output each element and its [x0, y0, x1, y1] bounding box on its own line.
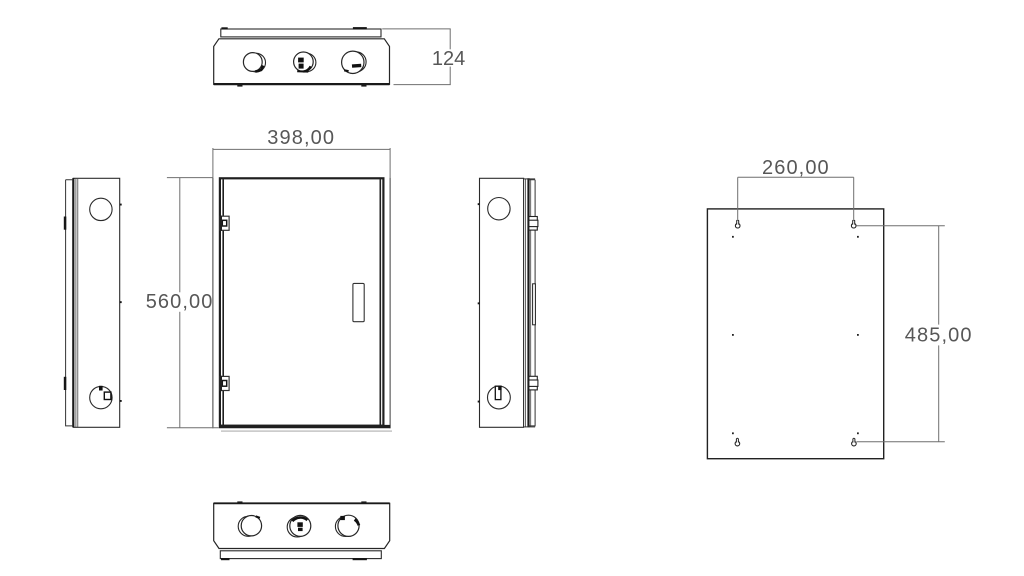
svg-text:124: 124	[432, 48, 465, 70]
svg-text:485,00: 485,00	[905, 325, 973, 347]
svg-text:398,00: 398,00	[267, 127, 335, 149]
svg-text:260,00: 260,00	[762, 157, 830, 179]
svg-text:560,00: 560,00	[146, 291, 214, 313]
